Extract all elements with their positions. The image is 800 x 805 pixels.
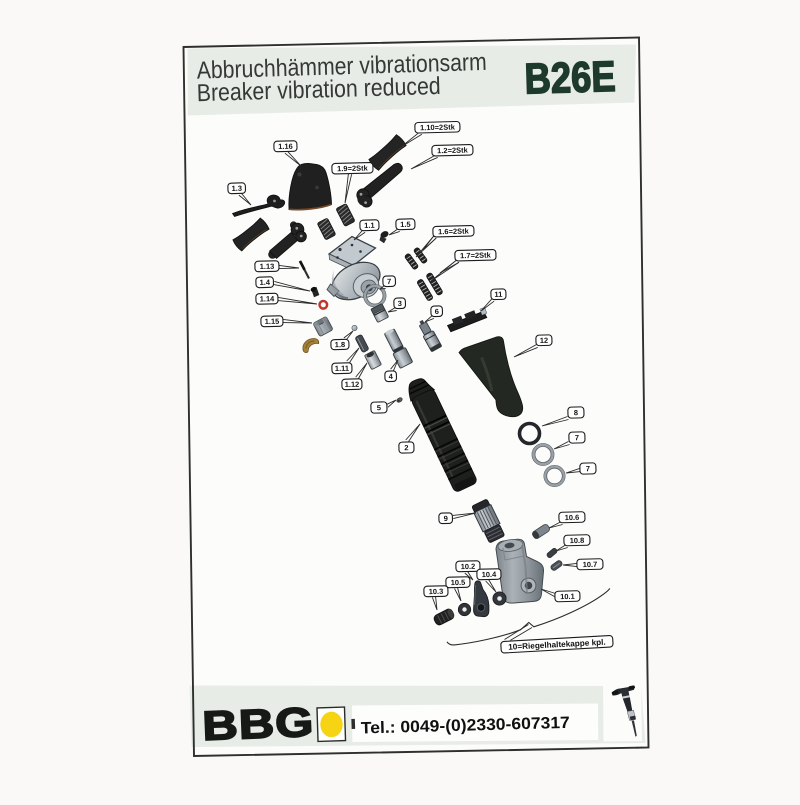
svg-text:10.7: 10.7 (583, 560, 598, 569)
svg-text:1.11: 1.11 (335, 364, 349, 373)
svg-text:8: 8 (574, 408, 578, 417)
svg-text:1.15: 1.15 (265, 317, 280, 326)
svg-text:7: 7 (575, 433, 579, 442)
svg-text:11: 11 (494, 290, 502, 299)
svg-text:10.6: 10.6 (565, 513, 580, 522)
svg-text:1.2=2Stk: 1.2=2Stk (437, 146, 469, 156)
svg-text:10.1: 10.1 (560, 592, 575, 601)
svg-text:1.5: 1.5 (400, 220, 411, 229)
svg-text:1.13: 1.13 (260, 262, 275, 271)
svg-text:10.5: 10.5 (451, 578, 466, 587)
svg-text:1.8: 1.8 (335, 340, 346, 349)
svg-text:10.3: 10.3 (429, 587, 444, 596)
svg-text:5: 5 (377, 403, 381, 412)
svg-text:B26E: B26E (524, 53, 616, 104)
svg-text:1.3: 1.3 (231, 184, 242, 193)
svg-text:9: 9 (444, 514, 448, 523)
svg-text:7: 7 (387, 277, 391, 286)
svg-text:1.6=2Stk: 1.6=2Stk (438, 227, 470, 237)
svg-text:1.14: 1.14 (260, 294, 276, 303)
svg-text:1.7=2Stk: 1.7=2Stk (460, 251, 492, 261)
svg-text:12: 12 (540, 336, 549, 345)
svg-text:6: 6 (435, 307, 439, 316)
svg-text:1.1: 1.1 (364, 221, 375, 230)
svg-text:1.4: 1.4 (259, 278, 270, 287)
svg-text:2: 2 (404, 443, 408, 452)
svg-text:3: 3 (398, 299, 402, 308)
svg-text:1.10=2Stk: 1.10=2Stk (420, 122, 456, 132)
svg-text:10.2: 10.2 (461, 562, 476, 571)
svg-text:BBG: BBG (202, 699, 316, 749)
svg-text:10.8: 10.8 (570, 536, 585, 545)
svg-text:10.4: 10.4 (482, 570, 498, 579)
svg-text:1.12: 1.12 (345, 380, 360, 389)
svg-text:1.9=2Stk: 1.9=2Stk (337, 164, 369, 174)
svg-text:7: 7 (586, 464, 590, 473)
svg-text:1.16: 1.16 (278, 142, 293, 151)
